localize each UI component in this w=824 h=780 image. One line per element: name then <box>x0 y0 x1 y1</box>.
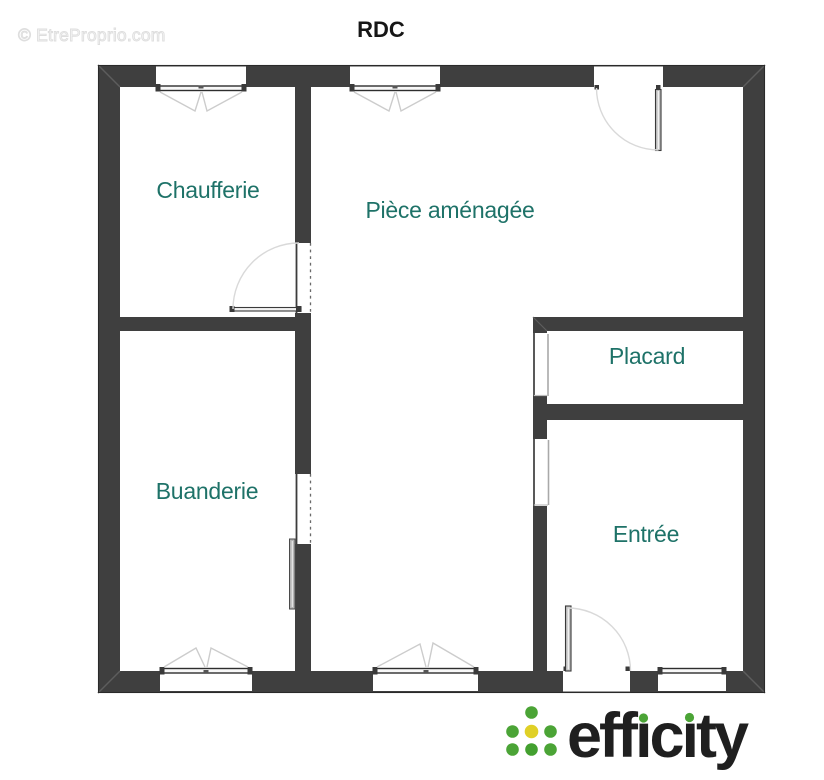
svg-text:Placard: Placard <box>609 343 685 369</box>
svg-text:Pièce aménagée: Pièce aménagée <box>365 197 534 223</box>
svg-text:RDC: RDC <box>357 17 405 42</box>
svg-text:Entrée: Entrée <box>613 521 679 547</box>
svg-text:Chaufferie: Chaufferie <box>156 177 259 203</box>
svg-text:effıcıty: effıcıty <box>567 701 749 771</box>
svg-text:Buanderie: Buanderie <box>156 478 259 504</box>
svg-text:© EtreProprio.com: © EtreProprio.com <box>18 25 166 45</box>
